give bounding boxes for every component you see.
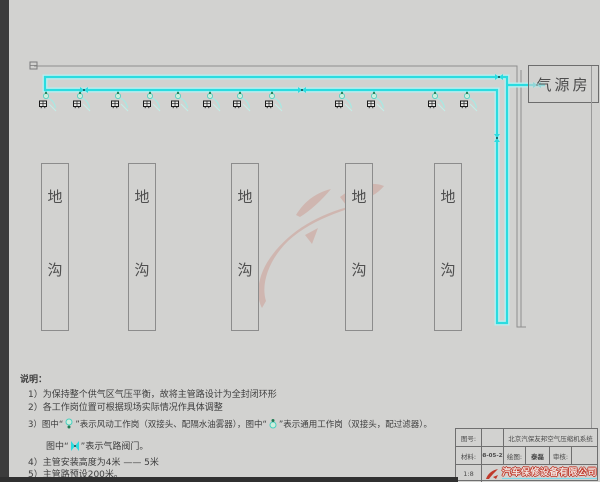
note-3: 3）图中“”表示风动工作岗（双接头、配隔水油雾器），图中“”表示通用工作岗（双接… [28,418,432,431]
general-workstation-icon [268,418,278,430]
building-outline [34,66,526,327]
workstation-icons [40,90,478,111]
drawing-no-label: 图号: [456,429,482,446]
date-value: 08-05-22 [482,447,504,464]
screen-edge-left [0,0,9,482]
title-block-row-1: 图号: 北京汽保友邦空气压缩机系统 [456,429,597,447]
screen-edge-bottom [0,477,458,482]
main-air-ring-pipe [45,77,545,323]
air-line-valve-icon [70,440,80,452]
air-source-room-box: 气源房 [528,65,599,103]
red-dragon-logo-icon [484,467,500,481]
air-source-room-label: 气源房 [536,74,590,95]
checked-label: 审核: [550,447,572,464]
drawing-no-value [482,429,504,446]
notes-heading: 说明： [20,374,47,386]
sheet-frame-line [591,66,592,428]
title-block: 图号: 北京汽保友邦空气压缩机系统 材料: 08-05-22 绘图: 泰磊 审核… [455,428,598,481]
company-logo-text: 汽车保修设备有限公司 [502,468,597,479]
note-1: 1）为保持整个供气区气压平衡，故将主管路设计为全封闭环形 [28,389,277,401]
drawing-title: 北京汽保友邦空气压缩机系统 [504,429,597,446]
cad-drawing-canvas: 地 沟 地 沟 地 沟 地 沟 地 沟 [0,0,600,482]
checked-by [572,447,597,464]
material-label: 材料: [456,447,482,464]
title-block-row-2: 材料: 08-05-22 绘图: 泰磊 审核: [456,447,597,465]
drawn-label: 绘图: [504,447,526,464]
note-2: 2）各工作岗位置可根据现场实际情况作具体调整 [28,402,223,414]
pneumatic-workstation-icon [64,418,74,430]
pipe-flange-icon [30,62,37,69]
note-4: 4）主管安装高度为4米 —— 5米 [28,457,159,469]
company-logo: 汽车保修设备有限公司 [482,465,597,482]
drawn-by: 泰磊 [526,447,550,464]
note-3b: 图中“”表示气路阀门。 [46,440,148,453]
scale-value: 1:8 [456,465,482,482]
title-block-row-3: 1:8 汽车保修设备有限公司 [456,465,597,482]
